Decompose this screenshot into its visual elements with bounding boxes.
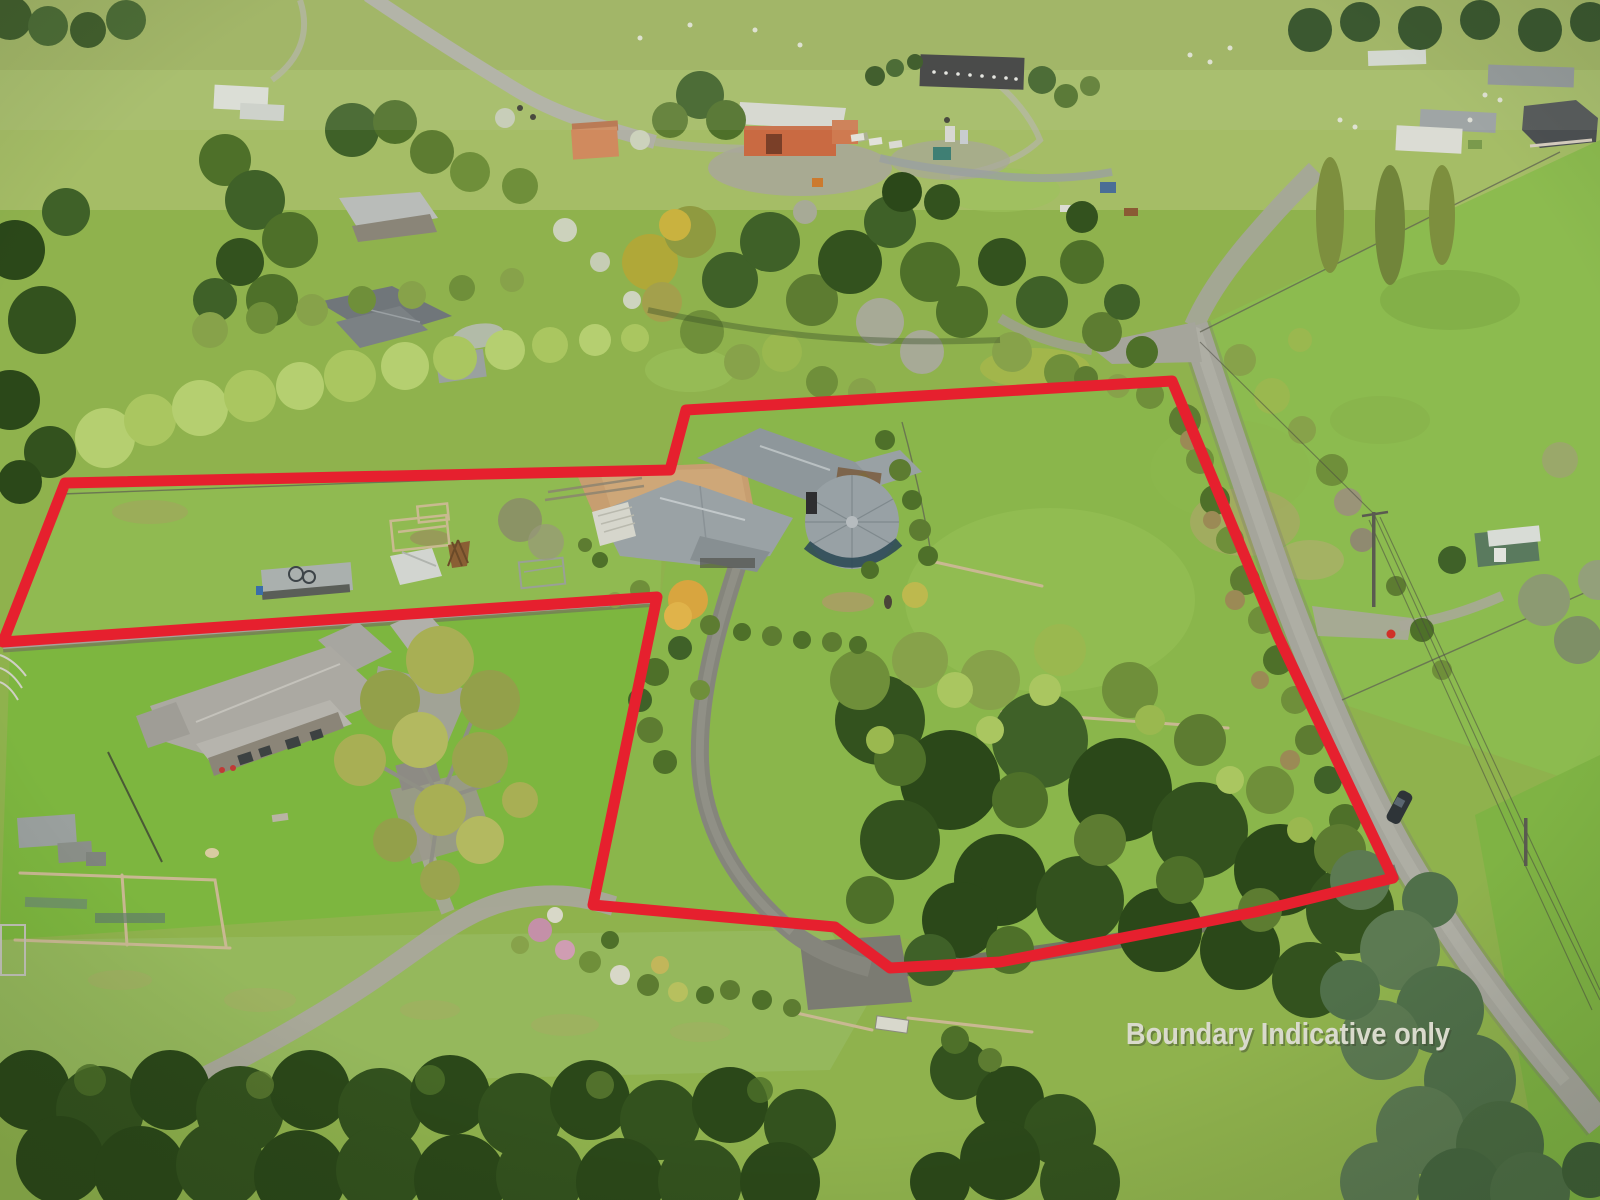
- aerial-photo: Boundary Indicative only Boundary Indica…: [0, 0, 1600, 1200]
- aerial-photo-canvas: Boundary Indicative only Boundary Indica…: [0, 0, 1600, 1200]
- boundary-disclaimer-text: Boundary Indicative only: [1126, 1017, 1451, 1051]
- boundary-disclaimer: Boundary Indicative only Boundary Indica…: [1126, 1017, 1453, 1053]
